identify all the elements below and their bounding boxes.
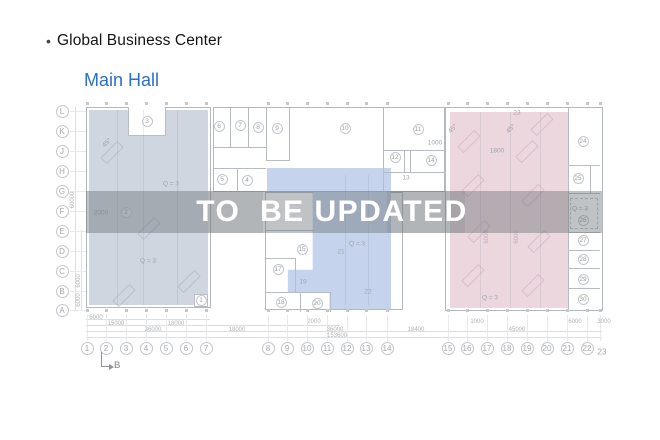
column-tick [346, 309, 349, 312]
hatch-mark [177, 270, 200, 293]
room-number: 1 [196, 295, 207, 306]
column-guide-line [206, 315, 207, 341]
grid-col-label: 12 [341, 342, 354, 355]
column-tick [486, 102, 489, 105]
column-guide-line [186, 315, 187, 341]
column-tick [466, 102, 469, 105]
room-number: 9 [272, 123, 283, 134]
plan-annotation: 45° [447, 123, 459, 135]
grid-col-label: 11 [321, 342, 334, 355]
plan-annotation: Q = 3 [482, 295, 498, 302]
interior-wall [410, 150, 411, 172]
plan-annotation: 45° [505, 123, 517, 135]
dimension-label: 1000 [470, 319, 483, 325]
interior-wall [266, 107, 267, 160]
column-tick [125, 102, 128, 105]
grid-row-label: G [56, 185, 69, 198]
interior-wall [213, 147, 267, 148]
column-tick [185, 309, 188, 312]
grid-row-label: D [56, 245, 69, 258]
hatch-mark [461, 264, 484, 287]
hatch-mark [112, 284, 135, 307]
column-tick [286, 102, 289, 105]
interior-wall [237, 168, 238, 192]
column-tick [326, 102, 329, 105]
column-tick [267, 309, 270, 312]
dimension-line [86, 319, 210, 320]
section-marker-label: B [114, 360, 120, 371]
row-guide-line [70, 271, 86, 272]
column-tick [566, 102, 569, 105]
column-tick [365, 309, 368, 312]
column-tick [205, 309, 208, 312]
room-number: 18 [276, 297, 287, 308]
column-tick [365, 102, 368, 105]
dimension-label: 18000 [168, 321, 185, 327]
room-number: 29 [578, 274, 589, 285]
grid-col-label: 1 [81, 342, 94, 355]
room-number: 28 [578, 254, 589, 265]
row-guide-line [70, 171, 86, 172]
dimension-label-vertical: 6000 [76, 293, 82, 306]
dimension-label: 36000 [145, 327, 162, 333]
column-tick [286, 309, 289, 312]
grid-col-label: 20 [541, 342, 554, 355]
watermark-text: TO BE UPDATED [196, 195, 468, 229]
grid-row-label: F [56, 205, 69, 218]
grid-col-label: 8 [262, 342, 275, 355]
grid-col-label: 21 [561, 342, 574, 355]
grid-col-label: 19 [521, 342, 534, 355]
grid-col-label: 22 [581, 342, 594, 355]
column-tick [145, 102, 148, 105]
dimension-label: 45000 [509, 327, 526, 333]
column-tick [466, 309, 469, 312]
dimension-label: 6000 [89, 315, 102, 321]
row-guide-line [70, 291, 86, 292]
dimension-label: 3000 [597, 319, 610, 325]
room-number: 20 [312, 298, 323, 309]
dimension-label: 18400 [408, 327, 425, 333]
hatch-mark [530, 113, 553, 136]
interior-wall [300, 292, 301, 312]
interior-wall [590, 165, 591, 193]
column-tick [306, 309, 309, 312]
column-guide-line [366, 315, 367, 341]
section-marker-line [101, 366, 109, 367]
interior-wall [265, 258, 295, 259]
column-guide-line [547, 315, 548, 341]
plan-annotation: 22 [364, 289, 371, 296]
dimension-label-vertical: 6000 [76, 274, 82, 287]
row-guide-line [70, 211, 86, 212]
column-tick [86, 309, 89, 312]
grid-col-label: 16 [461, 342, 474, 355]
grid-row-label: J [56, 145, 69, 158]
column-tick [506, 102, 509, 105]
dimension-label: 153600 [327, 333, 347, 339]
grid-row-label: B [56, 285, 69, 298]
column-tick [165, 102, 168, 105]
interior-wall [568, 165, 600, 166]
row-guide-line [70, 231, 86, 232]
grid-col-label: 5 [160, 342, 173, 355]
room-number: 11 [413, 124, 424, 135]
room-number: 8 [253, 122, 264, 133]
column-guide-line [487, 315, 488, 341]
plan-annotation: 21 [337, 249, 344, 256]
interior-wall [568, 268, 600, 269]
grid-col-label: 18 [501, 342, 514, 355]
column-tick [145, 309, 148, 312]
interior-wall [295, 258, 296, 292]
room-number: 24 [578, 136, 589, 147]
column-guide-line [166, 315, 167, 341]
column-guide-line [467, 315, 468, 341]
room-number: 6 [214, 121, 225, 132]
column-tick [486, 309, 489, 312]
plan-annotation: 13 [402, 175, 409, 182]
column-guide-line [106, 315, 107, 341]
dimension-label-vertical: 60000 [70, 192, 76, 209]
floor-plan: LKJHGFEDCBA12345678910111213141516171819… [0, 0, 660, 440]
grid-col-label: 10 [301, 342, 314, 355]
column-tick [566, 309, 569, 312]
column-tick [346, 102, 349, 105]
column-tick [105, 102, 108, 105]
dimension-label: 15000 [108, 321, 125, 327]
room-number: 17 [273, 264, 284, 275]
room-number: 15 [297, 244, 308, 255]
grid-row-label: H [56, 165, 69, 178]
plan-annotation: 19 [299, 279, 306, 286]
room-number: 14 [426, 155, 437, 166]
column-tick [185, 102, 188, 105]
column-tick [306, 102, 309, 105]
interior-wall [266, 160, 290, 161]
row-guide-line [70, 111, 86, 112]
interior-wall [330, 292, 331, 312]
grid-col-label: 9 [281, 342, 294, 355]
interior-wall [404, 150, 405, 172]
room-number: 27 [578, 235, 589, 246]
grid-row-label: C [56, 265, 69, 278]
plan-annotation: Q = 3 [140, 258, 156, 265]
dimension-label: 18000 [229, 327, 246, 333]
interior-wall [568, 288, 600, 289]
grid-row-label: K [56, 125, 69, 138]
plan-annotation: Q = 3 [163, 181, 179, 188]
column-tick [125, 309, 128, 312]
grid-col-label: 3 [120, 342, 133, 355]
column-tick [86, 102, 89, 105]
row-guide-line [70, 251, 86, 252]
grid-row-label: L [56, 105, 69, 118]
page: • Global Business Center Main Hall LKJHG… [0, 0, 660, 440]
room-number: 12 [390, 152, 401, 163]
room-number: 7 [235, 120, 246, 131]
column-tick [386, 102, 389, 105]
column-guide-line [347, 315, 348, 341]
interior-wall [265, 292, 330, 293]
hatch-mark [521, 274, 544, 297]
dimension-label: 2000 [307, 319, 320, 325]
hatch-mark [527, 230, 550, 253]
plan-annotation: Q = 3 [349, 241, 365, 248]
plan-annotation: 1800 [490, 148, 504, 155]
room-number: 10 [340, 123, 351, 134]
room-number: 4 [242, 175, 253, 186]
column-tick [447, 309, 450, 312]
room-number: 3 [142, 116, 153, 127]
column-guide-line [287, 315, 288, 341]
column-tick [546, 309, 549, 312]
plan-annotation: 1000 [428, 140, 442, 147]
interior-wall [213, 168, 266, 169]
column-tick [506, 309, 509, 312]
column-tick [267, 102, 270, 105]
interior-wall [289, 107, 290, 160]
room-number: 25 [573, 173, 584, 184]
grid-row-label: A [56, 304, 69, 317]
interior-wall [383, 150, 445, 151]
column-tick [546, 102, 549, 105]
column-tick [105, 309, 108, 312]
grid-col-label: 6 [180, 342, 193, 355]
column-guide-line [126, 315, 127, 341]
interior-wall [230, 107, 231, 147]
grid-col-label: 13 [360, 342, 373, 355]
hatch-mark [515, 140, 538, 163]
grid-col-label: 4 [140, 342, 153, 355]
interior-wall [568, 250, 600, 251]
column-tick [326, 309, 329, 312]
column-tick [526, 309, 529, 312]
column-tick [586, 102, 589, 105]
row-guide-line [70, 310, 86, 311]
column-guide-line [87, 315, 88, 341]
grid-col-label: 23 [598, 348, 607, 357]
column-tick [205, 102, 208, 105]
column-tick [447, 102, 450, 105]
hatch-mark [457, 130, 480, 153]
grid-col-label: 14 [381, 342, 394, 355]
grid-row-label: E [56, 225, 69, 238]
grid-col-label: 15 [442, 342, 455, 355]
grid-col-label: 7 [200, 342, 213, 355]
column-tick [386, 309, 389, 312]
grid-col-label: 17 [481, 342, 494, 355]
plan-annotation: 23 [513, 110, 520, 117]
room-number: 5 [217, 174, 228, 185]
column-guide-line [587, 315, 588, 341]
column-guide-line [268, 315, 269, 341]
row-guide-line [70, 151, 86, 152]
column-tick [526, 102, 529, 105]
dimension-label: 6000 [568, 319, 581, 325]
row-guide-line [70, 131, 86, 132]
column-tick [586, 309, 589, 312]
interior-wall [383, 172, 445, 173]
column-guide-line [527, 315, 528, 341]
column-tick [165, 309, 168, 312]
column-tick [599, 102, 602, 105]
room-number: 30 [578, 294, 589, 305]
column-tick [599, 309, 602, 312]
interior-wall [248, 107, 249, 147]
section-marker-line [101, 352, 102, 366]
column-guide-line [387, 315, 388, 341]
column-guide-line [448, 315, 449, 341]
